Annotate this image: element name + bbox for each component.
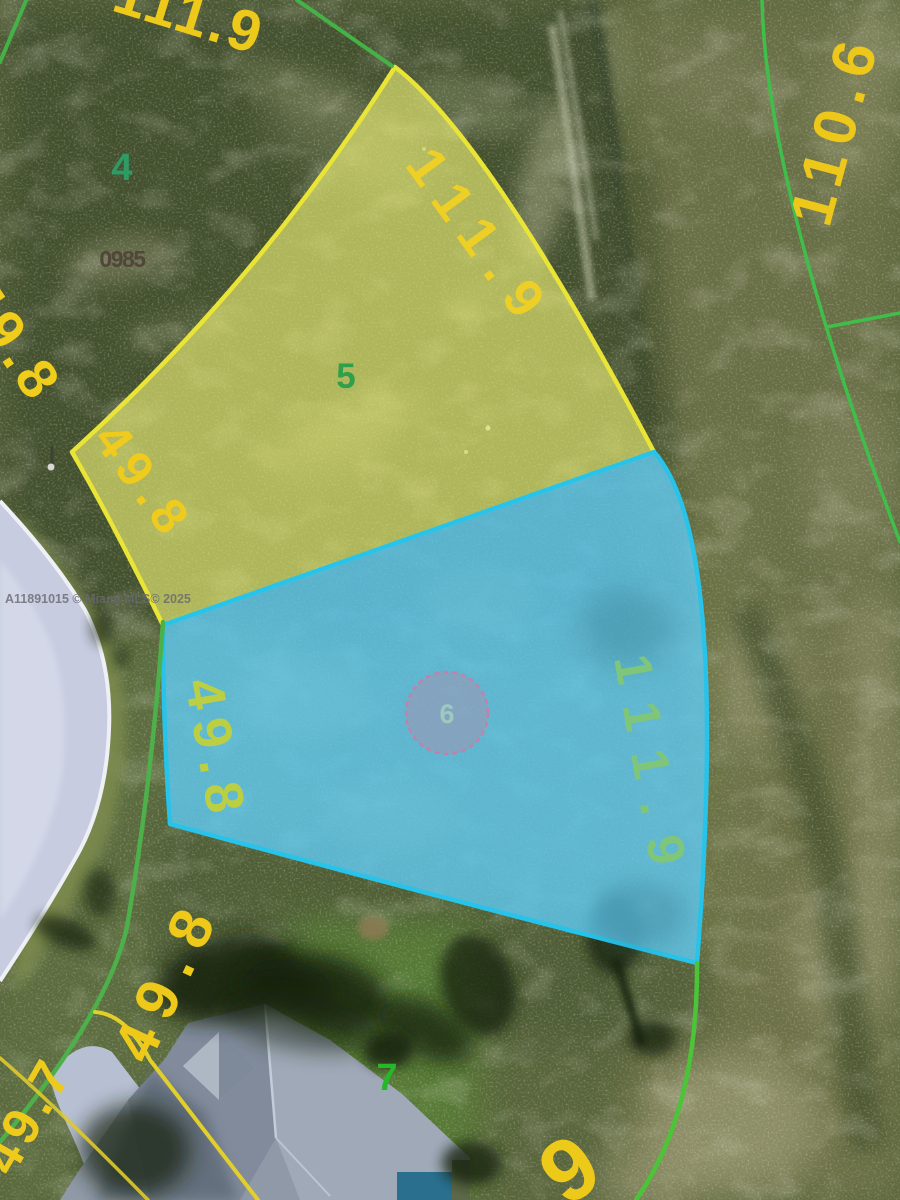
svg-text:0985: 0985: [99, 246, 146, 272]
svg-text:4: 4: [111, 147, 132, 189]
svg-text:A11891015 © Miami MLS© 2025: A11891015 © Miami MLS© 2025: [5, 592, 191, 606]
svg-text:6: 6: [439, 699, 454, 729]
svg-text:7: 7: [376, 1057, 397, 1099]
svg-text:5: 5: [336, 357, 355, 396]
